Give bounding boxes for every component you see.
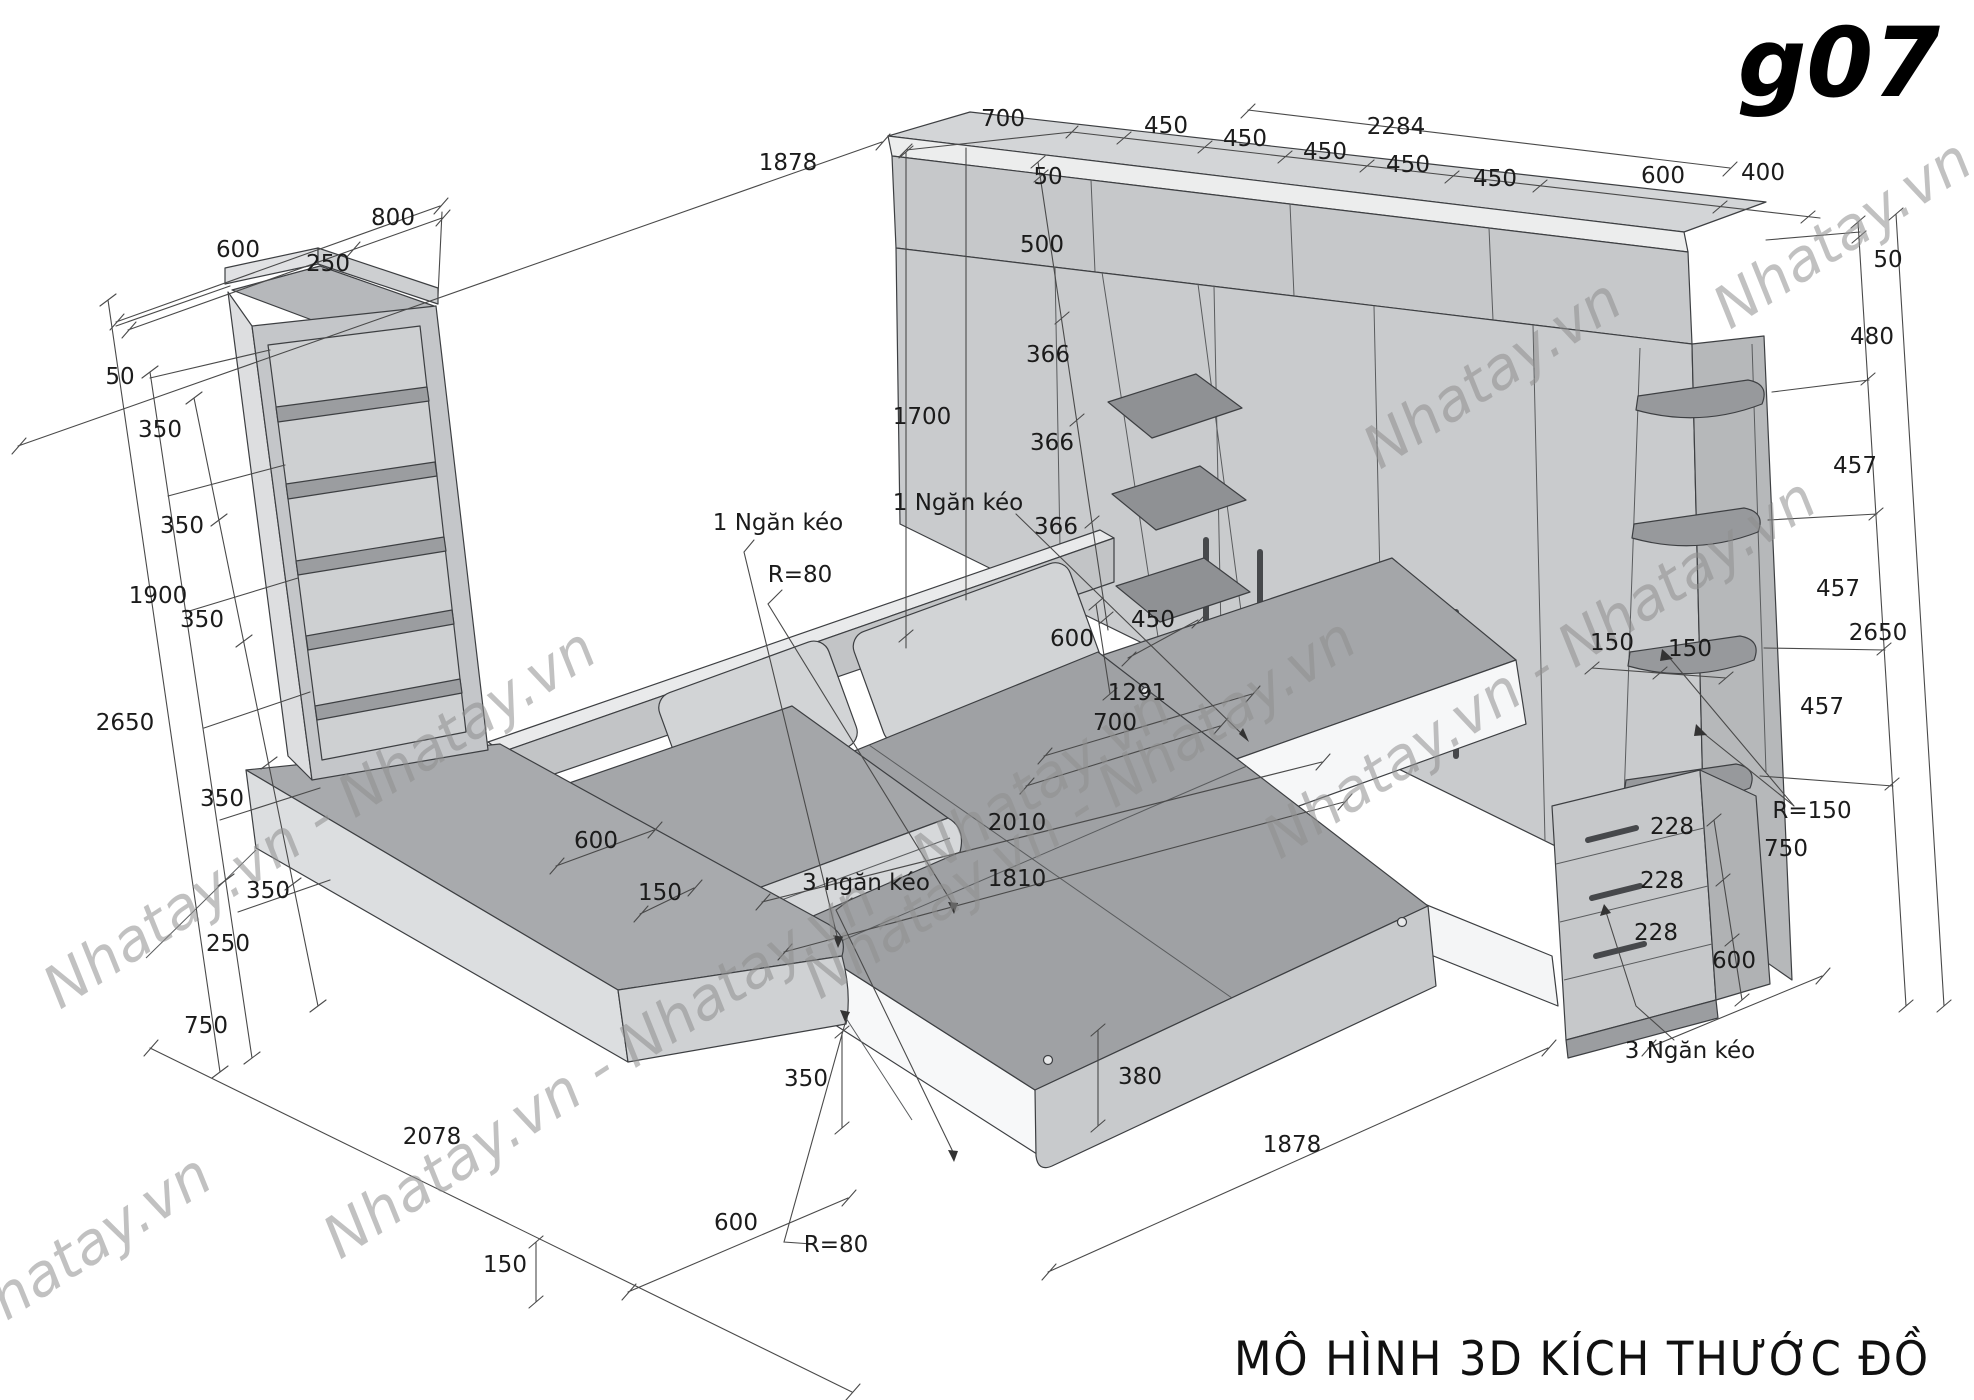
dim-label: 1 Ngăn kéo — [713, 510, 843, 536]
dim-label: 366 — [1030, 430, 1074, 456]
dim-label: 450 — [1386, 152, 1430, 178]
dim-label: 350 — [160, 513, 204, 539]
drawing-code-title: g07 — [1738, 7, 1941, 119]
dim-label: 1878 — [1263, 1132, 1322, 1158]
dim-label: 150 — [483, 1252, 527, 1278]
dim-label: R=150 — [1772, 798, 1851, 824]
dim-label: 350 — [180, 607, 224, 633]
dim-label: 2650 — [1849, 620, 1908, 646]
dim-label: 150 — [1590, 630, 1634, 656]
dim-label: 350 — [138, 417, 182, 443]
dim-label: 1700 — [893, 404, 952, 430]
dim-label: 1 Ngăn kéo — [893, 490, 1023, 516]
dim-label: 600 — [1050, 626, 1094, 652]
drawing-caption: MÔ HÌNH 3D KÍCH THƯỚC ĐỒ — [1234, 1327, 1930, 1387]
dim-label: 380 — [1118, 1064, 1162, 1090]
dim-label: 600 — [1712, 948, 1756, 974]
dim-label: 480 — [1850, 324, 1894, 350]
screw-dot — [1398, 918, 1407, 927]
dim-label: 450 — [1223, 126, 1267, 152]
dim-label: 50 — [1873, 247, 1902, 273]
dim-label: 2078 — [403, 1124, 462, 1150]
dim-label: 350 — [200, 786, 244, 812]
dim-label: 150 — [638, 880, 682, 906]
dim-label: 2010 — [988, 810, 1047, 836]
technical-drawing-canvas: Nhatay.vn - Nhatay.vn Nhatay.vn - Nhatay… — [0, 0, 1974, 1400]
dim-label: 700 — [981, 106, 1025, 132]
dim-label: 2284 — [1367, 114, 1426, 140]
dim-label: R=80 — [804, 1232, 869, 1258]
dim-label: 150 — [1668, 636, 1712, 662]
dim-label: 500 — [1020, 232, 1064, 258]
dim-label: 366 — [1026, 342, 1070, 368]
dim-label: 600 — [714, 1210, 758, 1236]
dim-label: 750 — [1764, 836, 1808, 862]
dim-label: 700 — [1093, 710, 1137, 736]
dim-label: 1291 — [1108, 680, 1167, 706]
dim-label: 457 — [1800, 694, 1844, 720]
dim-label: 3 ngăn kéo — [802, 870, 930, 896]
dim-label: 800 — [371, 205, 415, 231]
dim-label: 600 — [574, 828, 618, 854]
dim-label: 2650 — [96, 710, 155, 736]
dim-label: 450 — [1144, 113, 1188, 139]
dim-label: 350 — [784, 1066, 828, 1092]
dim-label: 1900 — [129, 583, 188, 609]
dim-label: 350 — [246, 878, 290, 904]
dim-label: 228 — [1650, 814, 1694, 840]
dim-label: R=80 — [768, 562, 833, 588]
dim-label: 366 — [1034, 514, 1078, 540]
dim-label: 750 — [184, 1013, 228, 1039]
dim-label: 3 Ngăn kéo — [1625, 1038, 1755, 1064]
dim-label: 250 — [306, 251, 350, 277]
dim-label: 50 — [1033, 164, 1062, 190]
dim-label: 50 — [105, 364, 134, 390]
dim-label: 1810 — [988, 866, 1047, 892]
dim-label: 1878 — [759, 150, 818, 176]
dim-label: 450 — [1473, 166, 1517, 192]
dim-label: 450 — [1303, 139, 1347, 165]
dim-label: 250 — [206, 931, 250, 957]
dim-label: 228 — [1634, 920, 1678, 946]
dim-label: 457 — [1833, 453, 1877, 479]
dim-label: 450 — [1131, 607, 1175, 633]
dim-label: 600 — [1641, 163, 1685, 189]
screw-dot — [1044, 1056, 1053, 1065]
dim-label: 228 — [1640, 868, 1684, 894]
dim-label: 400 — [1741, 160, 1785, 186]
dim-label: 600 — [216, 237, 260, 263]
dim-label: 457 — [1816, 576, 1860, 602]
